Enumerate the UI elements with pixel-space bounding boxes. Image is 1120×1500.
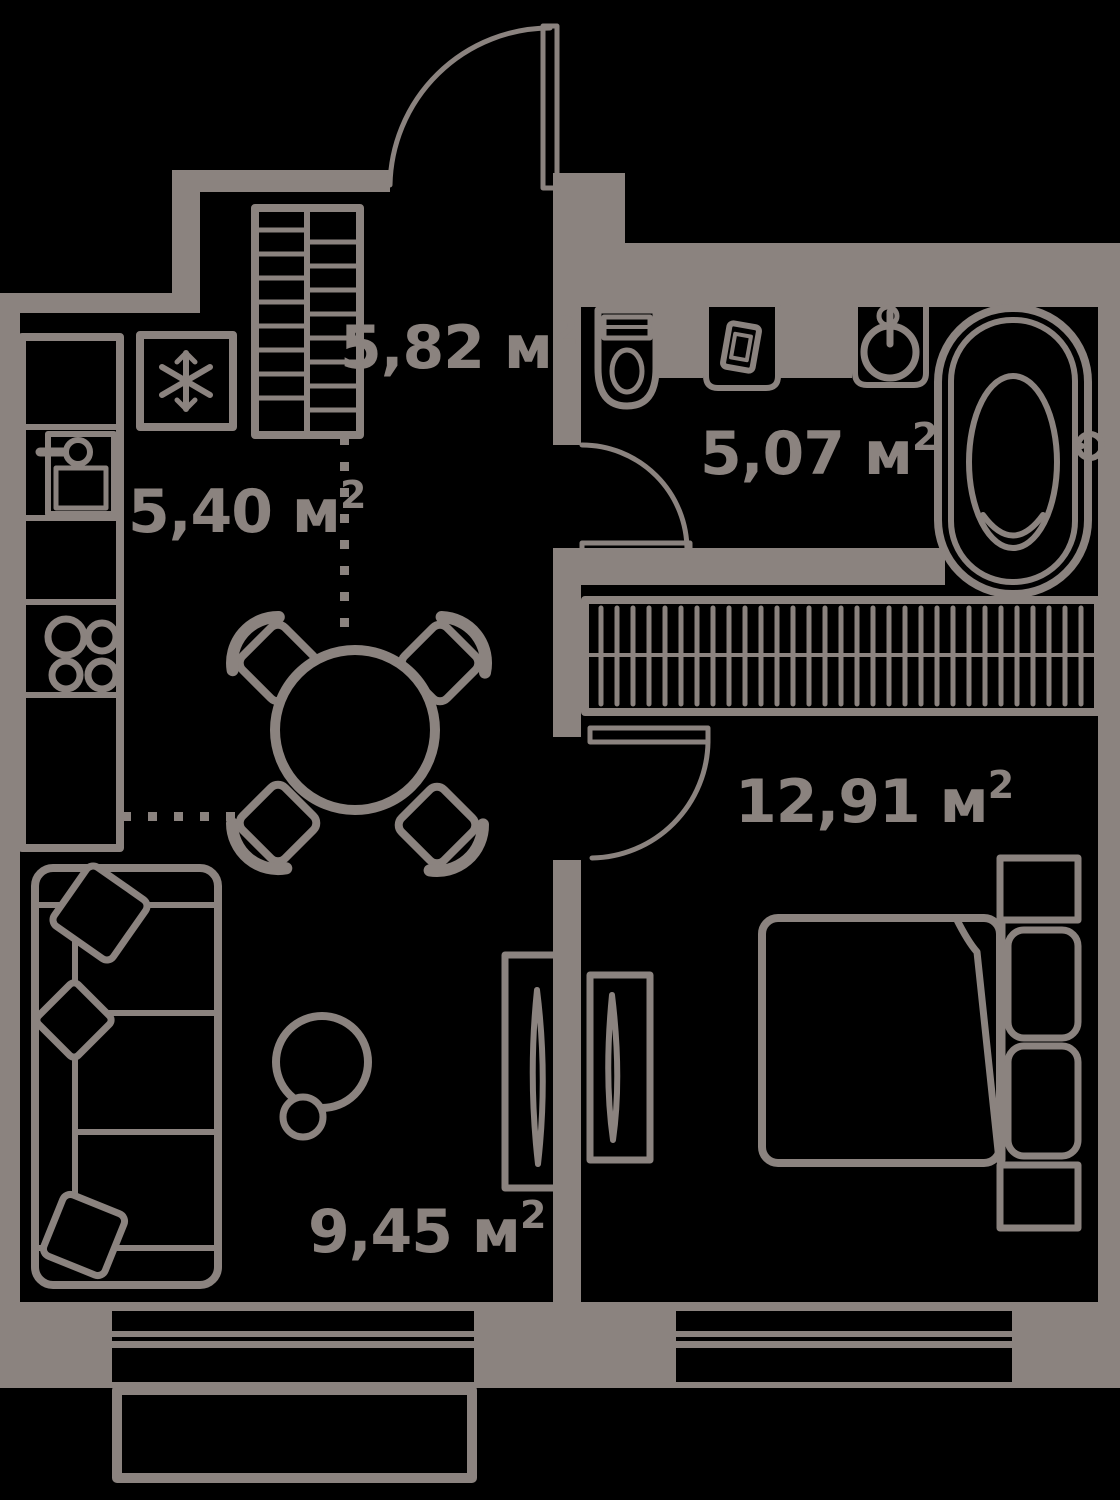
window-right-pane-outer bbox=[676, 1311, 1012, 1331]
washing-machine bbox=[706, 307, 778, 388]
zoning-dotted-line-horizontal bbox=[122, 812, 235, 821]
zoning-dotted-line-vertical bbox=[340, 436, 349, 627]
kitchen-sink bbox=[40, 434, 114, 514]
washing-machine-door-icon bbox=[731, 334, 751, 360]
wall-kitchen-top bbox=[0, 293, 200, 313]
stove-burners bbox=[48, 619, 116, 689]
bed-blanket-fold bbox=[956, 918, 999, 1160]
room-label-bedroom: 12,91 м2 bbox=[735, 763, 1013, 837]
bathtub bbox=[938, 308, 1102, 594]
faucet-icon bbox=[66, 440, 90, 464]
bedroom-door bbox=[590, 728, 708, 858]
floor-plan-canvas: 5,82 м2 5,40 м2 5,07 м2 12,91 м2 9,45 м2 bbox=[0, 0, 1120, 1500]
entrance-door bbox=[390, 26, 557, 188]
window-right-pane-inner bbox=[676, 1348, 1012, 1382]
floor-lamp-base bbox=[283, 1097, 323, 1137]
wardrobe-bedroom bbox=[585, 600, 1098, 712]
sofa-pillow bbox=[41, 1192, 127, 1278]
tv-console-bedroom bbox=[590, 975, 650, 1160]
wall-bathroom-top bbox=[553, 243, 1120, 307]
bathroom-door bbox=[582, 445, 690, 557]
bedroom-door-swing-arc bbox=[592, 742, 708, 858]
bed-mattress bbox=[762, 918, 1000, 1163]
wall-right bbox=[1098, 243, 1120, 1388]
toilet bbox=[598, 310, 656, 406]
bathtub-basin bbox=[969, 376, 1057, 548]
entrance-door-swing-arc bbox=[390, 28, 550, 185]
balcony bbox=[117, 1390, 472, 1478]
kitchen-counter bbox=[22, 337, 120, 848]
bathroom-sink bbox=[855, 307, 926, 385]
sofa-pillow bbox=[50, 863, 150, 963]
room-label-hallway: 5,82 м2 bbox=[340, 309, 577, 383]
burner-icon bbox=[88, 661, 116, 689]
burner-icon bbox=[48, 619, 84, 655]
burner-icon bbox=[88, 623, 116, 651]
floor-plan: 5,82 м2 5,40 м2 5,07 м2 12,91 м2 9,45 м2 bbox=[0, 0, 1120, 1500]
floor-lamp bbox=[276, 1016, 368, 1137]
toilet-bowl bbox=[612, 350, 642, 392]
nightstand bbox=[1000, 1165, 1078, 1228]
entrance-door-leaf bbox=[543, 26, 557, 188]
washing-machine-niche bbox=[706, 307, 778, 388]
bedroom-door-leaf bbox=[590, 728, 708, 742]
washing-machine-icon bbox=[722, 323, 759, 372]
wall-left bbox=[0, 293, 20, 1388]
sofa bbox=[34, 863, 218, 1285]
room-label-living-room: 9,45 м2 bbox=[308, 1193, 545, 1267]
hallway-closet-shelves-left bbox=[255, 230, 305, 398]
kitchen-sink-bowl-inner bbox=[56, 468, 106, 508]
kitchen-counter-outline bbox=[22, 337, 120, 848]
bed-pillow bbox=[1008, 930, 1078, 1038]
wall-duct-2 bbox=[780, 307, 852, 378]
refrigerator bbox=[140, 335, 233, 427]
sofa-pillow bbox=[34, 980, 113, 1059]
tv-icon bbox=[533, 990, 543, 1164]
bathtub-drain-arc bbox=[983, 515, 1043, 536]
room-label-bathroom: 5,07 м2 bbox=[700, 415, 937, 489]
room-label-kitchen: 5,40 м2 bbox=[128, 473, 365, 547]
bed-pillow bbox=[1008, 1046, 1078, 1156]
window-left-pane-inner bbox=[112, 1348, 474, 1382]
wall-top bbox=[172, 170, 390, 192]
window-left-glass-line bbox=[112, 1337, 474, 1341]
dining-table bbox=[275, 650, 435, 810]
wall-duct-1 bbox=[657, 307, 703, 378]
bathroom-door-swing-arc bbox=[582, 445, 687, 550]
bed bbox=[762, 858, 1078, 1228]
snowflake-icon bbox=[162, 353, 210, 409]
floor-lamp-shade bbox=[276, 1016, 368, 1108]
dining-set bbox=[232, 617, 486, 871]
window-left-pane-outer bbox=[112, 1311, 474, 1331]
window-right-glass-line bbox=[676, 1337, 1012, 1341]
tv-icon bbox=[608, 995, 617, 1140]
wall-bathroom-bottom bbox=[553, 548, 945, 585]
burner-icon bbox=[52, 661, 80, 689]
nightstand bbox=[1000, 858, 1078, 920]
